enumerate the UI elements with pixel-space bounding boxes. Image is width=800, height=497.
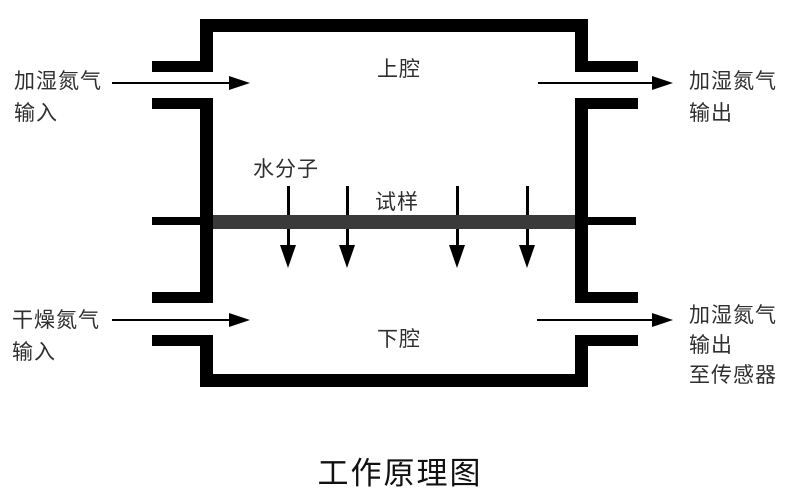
arrow-head — [229, 313, 250, 327]
port-opening-top-right — [572, 72, 591, 98]
label-line: 至传感器 — [689, 361, 777, 391]
label-lower-chamber: 下腔 — [377, 324, 421, 356]
arrow-head — [229, 76, 250, 90]
label-humidified-n2-input: 加湿氮气 输入 — [14, 66, 102, 130]
working-principle-diagram: 加湿氮气 输入 加湿氮气 输出 干燥氮气 输入 加湿氮气 输出 至传感器 上腔 … — [0, 0, 800, 497]
page-title: 工作原理图 — [0, 448, 800, 493]
port-opening-top-left — [197, 72, 216, 98]
label-line: 输出 — [689, 331, 777, 361]
arrow-head — [339, 245, 355, 268]
port-stub-bottom-left-lower — [152, 335, 213, 346]
chamber-wall-bottom — [200, 374, 588, 387]
chamber-wall-top — [200, 19, 588, 32]
port-stub-top-left-lower — [152, 98, 213, 109]
port-stub-top-right-upper — [575, 61, 638, 72]
label-sample: 试样 — [375, 187, 419, 219]
arrow-shaft — [112, 82, 232, 84]
label-line: 加湿氮气 — [689, 66, 777, 98]
label-upper-chamber: 上腔 — [377, 54, 421, 86]
port-stub-top-right-lower — [575, 98, 638, 109]
label-water-molecules: 水分子 — [253, 154, 319, 186]
label-dry-n2-input: 干燥氮气 输入 — [12, 305, 100, 369]
arrow-shaft — [112, 319, 232, 321]
label-line: 加湿氮气 — [689, 301, 777, 331]
label-humidified-n2-output: 加湿氮气 输出 — [689, 66, 777, 130]
arrow-shaft — [537, 319, 655, 321]
label-line: 输入 — [12, 337, 100, 369]
arrow-head — [652, 313, 673, 327]
arrow-head — [449, 245, 465, 268]
sample-holder-stub-right — [584, 217, 636, 225]
arrow-head — [652, 76, 673, 90]
arrow-head — [519, 245, 535, 268]
label-line: 输出 — [689, 98, 777, 130]
port-stub-bottom-left-upper — [152, 292, 213, 303]
label-line: 干燥氮气 — [12, 305, 100, 337]
sample-holder-stub-left — [152, 217, 204, 225]
arrow-head — [280, 245, 296, 268]
label-line: 加湿氮气 — [14, 66, 102, 98]
label-humidified-n2-output-to-sensor: 加湿氮气 输出 至传感器 — [689, 301, 777, 391]
port-stub-bottom-right-upper — [575, 292, 638, 303]
arrow-shaft — [538, 82, 655, 84]
port-stub-top-left-upper — [152, 61, 213, 72]
label-line: 输入 — [14, 98, 102, 130]
port-stub-bottom-right-lower — [575, 335, 638, 346]
